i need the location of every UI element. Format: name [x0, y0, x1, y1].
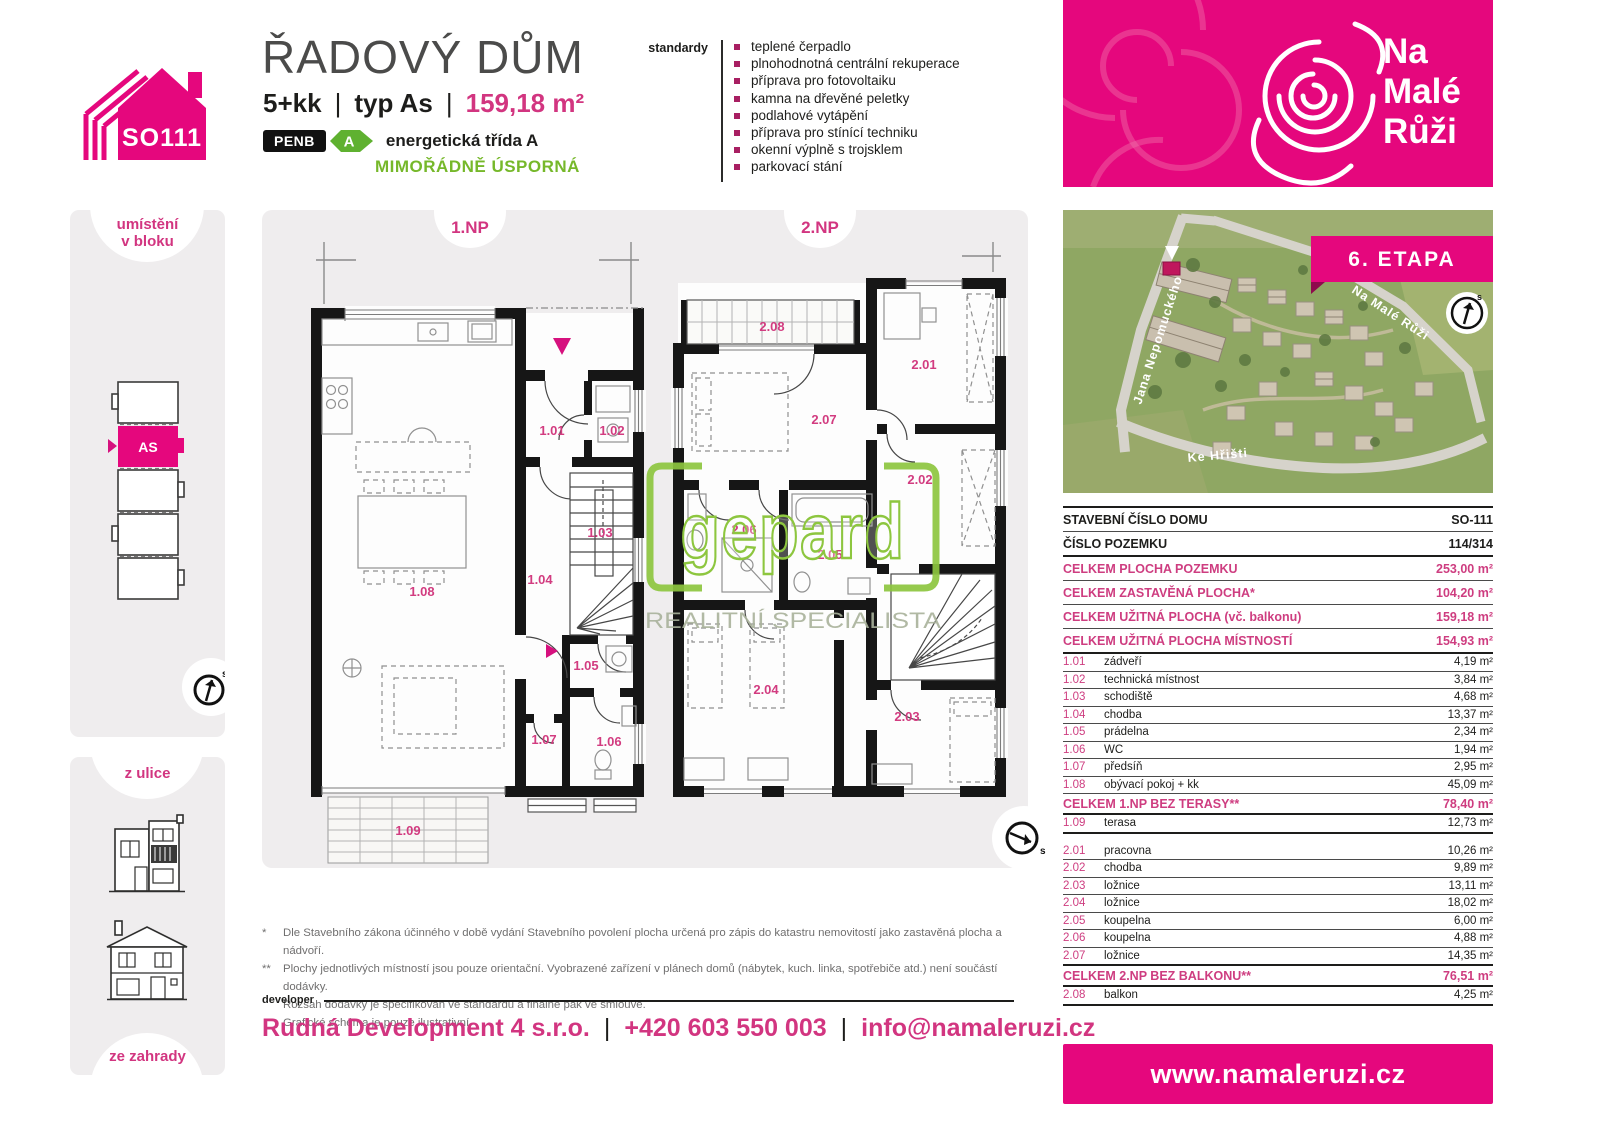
standards-item: příprava pro fotovoltaiku	[734, 72, 960, 89]
room-area: 4,68 m²	[1454, 691, 1493, 703]
row-label: CELKEM PLOCHA POZEMKU	[1063, 562, 1238, 576]
room-number: 2.03	[1063, 880, 1095, 892]
room-label: 2.04	[753, 682, 779, 697]
layout-label: 5+kk	[263, 88, 322, 119]
unit-label: AS	[138, 439, 157, 455]
row-value: 253,00 m²	[1436, 562, 1493, 576]
floor-plan-1np: 1.01 1.02 1.03 1.04 1.05 1.06 1.07 1.08 …	[300, 238, 655, 866]
room-name: prádelna	[1095, 726, 1454, 738]
block-position-diagram: AS	[108, 378, 188, 603]
location-title-line: umístění	[70, 216, 225, 233]
room-name: terasa	[1095, 817, 1448, 829]
row-label: ČÍSLO POZEMKU	[1063, 537, 1167, 551]
developer-phone[interactable]: +420 603 550 003	[624, 1014, 826, 1043]
entry-steps	[528, 799, 636, 812]
brand-line: Na	[1383, 32, 1461, 72]
floor2-label: 2.NP	[780, 218, 860, 238]
street-view-label: z ulice	[70, 765, 225, 782]
bullet-icon	[734, 113, 740, 119]
room-name: schodiště	[1095, 691, 1454, 703]
standards-item-label: teplené čerpadlo	[751, 39, 851, 54]
developer-section: developer Rudná Development 4 s.r.o. | +…	[262, 994, 1014, 1043]
room-name: obývací pokoj + kk	[1095, 779, 1448, 791]
room-number: 2.05	[1063, 915, 1095, 927]
street-elevation-drawing	[107, 809, 187, 897]
total-value: 76,51 m²	[1443, 969, 1493, 983]
location-title-line: v bloku	[70, 233, 225, 250]
brand-line: Růži	[1383, 112, 1461, 152]
standards-item-label: podlahové vytápění	[751, 108, 868, 123]
standards-item-label: okenní výplně s trojsklem	[751, 142, 903, 157]
room-area: 1,94 m²	[1454, 744, 1493, 756]
footnote-line: * Dle Stavebního zákona účinného v době …	[262, 924, 1018, 960]
room-name: předsíň	[1095, 761, 1454, 773]
room-number: 2.04	[1063, 897, 1095, 909]
table-row: ČÍSLO POZEMKU 114/314	[1063, 531, 1493, 555]
room-label: 1.02	[599, 423, 624, 438]
brand-logo-block: Na Malé Růži	[1063, 0, 1493, 187]
house-code-icon: SO111	[82, 54, 220, 168]
brand-name: Na Malé Růži	[1383, 32, 1461, 152]
compass-icon: s	[998, 816, 1050, 864]
row-label: CELKEM UŽITNÁ PLOCHA MÍSTNOSTÍ	[1063, 634, 1292, 648]
footnote-text: Dle Stavebního zákona účinného v době vy…	[283, 924, 1018, 960]
garden-view-label: ze zahrady	[70, 1048, 225, 1065]
row-label: CELKEM UŽITNÁ PLOCHA (vč. balkonu)	[1063, 610, 1301, 624]
room-label: 1.08	[409, 584, 434, 599]
table-row: 2.05 koupelna 6,00 m²	[1063, 912, 1493, 930]
room-name: chodba	[1095, 709, 1448, 721]
separator: |	[604, 1014, 611, 1043]
staircase	[570, 473, 633, 635]
watermark-tagline: REALITNÍ SPECIALISTA	[645, 608, 941, 633]
table-row: 1.09 terasa 12,73 m²	[1063, 813, 1493, 834]
room-label: 1.05	[573, 658, 598, 673]
standards-item: plnohodnotná centrální rekuperace	[734, 55, 960, 72]
garden-elevation-drawing	[105, 915, 189, 1010]
table-row: 1.02 technická místnost 3,84 m²	[1063, 671, 1493, 689]
room-area: 4,88 m²	[1454, 932, 1493, 944]
room-number: 2.06	[1063, 932, 1095, 944]
energy-class-arrow-icon: A	[328, 128, 374, 154]
table-row: 2.06 koupelna 4,88 m²	[1063, 929, 1493, 947]
footnote-mark: *	[262, 924, 283, 960]
bullet-icon	[734, 61, 740, 67]
energy-class-text: energetická třída A	[386, 131, 538, 151]
room-name: pracovna	[1095, 845, 1448, 857]
table-row: 2.03 ložnice 13,11 m²	[1063, 877, 1493, 895]
room-area: 3,84 m²	[1454, 674, 1493, 686]
row-value: 159,18 m²	[1436, 610, 1493, 624]
floor-plans-panel: 1.NP 2.NP	[262, 210, 1028, 868]
room-name: zádveří	[1095, 656, 1454, 668]
areas-table: STAVEBNÍ ČÍSLO DOMU SO-111 ČÍSLO POZEMKU…	[1063, 506, 1493, 1006]
table-row: 2.07 ložnice 14,35 m²	[1063, 947, 1493, 965]
aerial-site-render: 6. ETAPA s Jana Nepomuckého Na Malé Růži…	[1063, 210, 1493, 493]
row-label: CELKEM ZASTAVĚNÁ PLOCHA*	[1063, 586, 1255, 600]
compass-north-letter: s	[222, 669, 225, 680]
room-name: chodba	[1095, 862, 1454, 874]
room-area: 45,09 m²	[1448, 779, 1493, 791]
room-number: 2.01	[1063, 845, 1095, 857]
room-area: 13,11 m²	[1448, 880, 1493, 892]
brand-line: Malé	[1383, 72, 1461, 112]
website-url[interactable]: www.namaleruzi.cz	[1150, 1059, 1405, 1090]
room-number: 2.08	[1063, 989, 1095, 1001]
table-gap	[1063, 834, 1493, 843]
room-number: 1.04	[1063, 709, 1095, 721]
subtitle: 5+kk | typ As | 159,18 m²	[263, 88, 584, 119]
bullet-icon	[734, 78, 740, 84]
table-row: 1.04 chodba 13,37 m²	[1063, 706, 1493, 724]
rule-line	[324, 1000, 1014, 1002]
table-row: 1.03 schodiště 4,68 m²	[1063, 688, 1493, 706]
footnote-line: ** Plochy jednotlivých místností jsou po…	[262, 960, 1018, 996]
room-label: 1.09	[395, 823, 420, 838]
separator: |	[841, 1014, 848, 1043]
room-number: 1.07	[1063, 761, 1095, 773]
developer-label-row: developer	[262, 994, 1014, 1006]
sidebar-elevations-panel: z ulice	[70, 757, 225, 1075]
bullet-icon	[734, 96, 740, 102]
room-number: 2.07	[1063, 950, 1095, 962]
standards-item: příprava pro stínící techniku	[734, 124, 960, 141]
website-bar[interactable]: www.namaleruzi.cz	[1063, 1044, 1493, 1104]
standards-label: standardy	[648, 41, 708, 182]
room-number: 1.09	[1063, 817, 1095, 829]
developer-label: developer	[262, 994, 314, 1006]
compass-icon: s	[189, 665, 225, 709]
table-row: 1.07 předsíň 2,95 m²	[1063, 758, 1493, 776]
sidebar-location-panel: umístění v bloku AS	[70, 210, 225, 737]
standards-item-label: kamna na dřevěné peletky	[751, 91, 909, 106]
bullet-icon	[734, 147, 740, 153]
room-area: 9,89 m²	[1454, 862, 1493, 874]
room-number: 1.06	[1063, 744, 1095, 756]
table-row: 1.01 zádveří 4,19 m²	[1063, 652, 1493, 671]
brochure-page: SO111 ŘADOVÝ DŮM 5+kk | typ As | 159,18 …	[0, 0, 1600, 1130]
table-row: 2.02 chodba 9,89 m²	[1063, 859, 1493, 877]
room-label: 2.07	[811, 412, 836, 427]
standards-item-label: příprava pro stínící techniku	[751, 125, 918, 140]
room-name: ložnice	[1095, 880, 1448, 892]
room-label: 2.03	[894, 709, 919, 724]
type-label: typ As	[354, 88, 433, 119]
room-name: technická místnost	[1095, 674, 1454, 686]
room-name: koupelna	[1095, 932, 1454, 944]
area-label: 159,18 m²	[466, 88, 585, 119]
separator: |	[446, 88, 453, 119]
room-number: 1.08	[1063, 779, 1095, 791]
compass-north-letter: s	[1477, 292, 1482, 302]
room-area: 13,37 m²	[1448, 709, 1493, 721]
room-area: 14,35 m²	[1448, 950, 1493, 962]
table-row: 1.06 WC 1,94 m²	[1063, 741, 1493, 759]
row-value: 114/314	[1449, 537, 1494, 551]
standards-item: parkovací stání	[734, 158, 960, 175]
table-row: STAVEBNÍ ČÍSLO DOMU SO-111	[1063, 506, 1493, 531]
row-value: 104,20 m²	[1436, 586, 1493, 600]
floor1-label: 1.NP	[430, 218, 510, 238]
room-area: 4,19 m²	[1454, 656, 1493, 668]
room-area: 2,34 m²	[1454, 726, 1493, 738]
standards-divider	[721, 40, 723, 182]
standards-item: kamna na dřevěné peletky	[734, 90, 960, 107]
energy-rating-text: MIMOŘÁDNĚ ÚSPORNÁ	[375, 157, 580, 177]
room-number: 1.05	[1063, 726, 1095, 738]
room-area: 6,00 m²	[1454, 915, 1493, 927]
table-row-total: CELKEM 2.NP BEZ BALKONU** 76,51 m²	[1063, 964, 1493, 985]
developer-email[interactable]: info@namaleruzi.cz	[861, 1014, 1095, 1043]
bullet-icon	[734, 130, 740, 136]
table-row: 2.04 ložnice 18,02 m²	[1063, 894, 1493, 912]
compass-north-letter: s	[1040, 846, 1046, 857]
row-label: STAVEBNÍ ČÍSLO DOMU	[1063, 513, 1208, 527]
room-label: 1.06	[596, 734, 621, 749]
table-row: 2.08 balkon 4,25 m²	[1063, 985, 1493, 1006]
room-label: 1.01	[539, 423, 564, 438]
table-row: CELKEM ZASTAVĚNÁ PLOCHA* 104,20 m²	[1063, 580, 1493, 604]
room-area: 10,26 m²	[1448, 845, 1493, 857]
party-wall-hints	[962, 242, 1001, 272]
standards-item: teplené čerpadlo	[734, 38, 960, 55]
room-area: 4,25 m²	[1454, 989, 1493, 1001]
compass-icon: s	[1446, 292, 1488, 334]
room-number: 1.02	[1063, 674, 1095, 686]
bullet-icon	[734, 44, 740, 50]
unit-pointer-icon	[108, 439, 117, 453]
room-area: 12,73 m²	[1448, 817, 1493, 829]
table-row: 1.05 prádelna 2,34 m²	[1063, 723, 1493, 741]
total-value: 78,40 m²	[1443, 797, 1493, 811]
aerial-illustration: 6. ETAPA s Jana Nepomuckého Na Malé Růži…	[1063, 210, 1493, 493]
total-label: CELKEM 2.NP BEZ BALKONU**	[1063, 969, 1251, 983]
table-row-total: CELKEM 1.NP BEZ TERASY** 78,40 m²	[1063, 793, 1493, 813]
table-row: CELKEM UŽITNÁ PLOCHA MÍSTNOSTÍ 154,93 m²	[1063, 628, 1493, 652]
room-area: 18,02 m²	[1448, 897, 1493, 909]
room-name: WC	[1095, 744, 1454, 756]
room-number: 2.02	[1063, 862, 1095, 874]
row-value: SO-111	[1451, 513, 1493, 527]
party-wall-hints	[316, 242, 639, 304]
house-code-label: SO111	[122, 124, 202, 152]
room-name: balkon	[1095, 989, 1454, 1001]
room-name: ložnice	[1095, 897, 1448, 909]
table-row: CELKEM UŽITNÁ PLOCHA (vč. balkonu) 159,1…	[1063, 604, 1493, 628]
gepard-watermark: gepard REALITNÍ SPECIALISTA	[640, 458, 946, 646]
room-number: 1.03	[1063, 691, 1095, 703]
footnote-text: Plochy jednotlivých místností jsou pouze…	[283, 960, 1018, 996]
standards-item-label: plnohodnotná centrální rekuperace	[751, 56, 960, 71]
page-title: ŘADOVÝ DŮM	[262, 30, 584, 84]
penb-row: PENB A energetická třída A	[263, 128, 538, 154]
room-name: ložnice	[1095, 950, 1448, 962]
room-label: 1.03	[587, 525, 612, 540]
standards-item-label: parkovací stání	[751, 159, 843, 174]
standards-section: standardy teplené čerpadlo plnohodnotná …	[648, 38, 960, 182]
room-label: 2.08	[759, 319, 784, 334]
location-title: umístění v bloku	[70, 216, 225, 250]
separator: |	[335, 88, 342, 119]
footnote-mark: **	[262, 960, 283, 996]
standards-item: okenní výplně s trojsklem	[734, 141, 960, 158]
room-label: 1.04	[527, 572, 553, 587]
room-number: 1.01	[1063, 656, 1095, 668]
stage-label: 6. ETAPA	[1348, 248, 1455, 271]
table-row: CELKEM PLOCHA POZEMKU 253,00 m²	[1063, 555, 1493, 580]
watermark-wordmark: gepard	[681, 487, 906, 575]
standards-item-label: příprava pro fotovoltaiku	[751, 73, 896, 88]
developer-contact-line: Rudná Development 4 s.r.o. | +420 603 55…	[262, 1014, 1014, 1043]
room-name: koupelna	[1095, 915, 1454, 927]
room-label: 2.01	[911, 357, 936, 372]
penb-badge: PENB	[263, 130, 326, 152]
energy-class-letter: A	[343, 134, 354, 151]
room-area: 2,95 m²	[1454, 761, 1493, 773]
room-label: 1.07	[531, 732, 556, 747]
highlighted-house	[1163, 262, 1180, 275]
bullet-icon	[734, 164, 740, 170]
table-row: 1.08 obývací pokoj + kk 45,09 m²	[1063, 776, 1493, 794]
developer-name: Rudná Development 4 s.r.o.	[262, 1014, 590, 1043]
standards-item: podlahové vytápění	[734, 107, 960, 124]
table-row: 2.01 pracovna 10,26 m²	[1063, 843, 1493, 860]
total-label: CELKEM 1.NP BEZ TERASY**	[1063, 797, 1239, 811]
standards-list: teplené čerpadlo plnohodnotná centrální …	[734, 38, 960, 182]
row-value: 154,93 m²	[1436, 634, 1493, 648]
